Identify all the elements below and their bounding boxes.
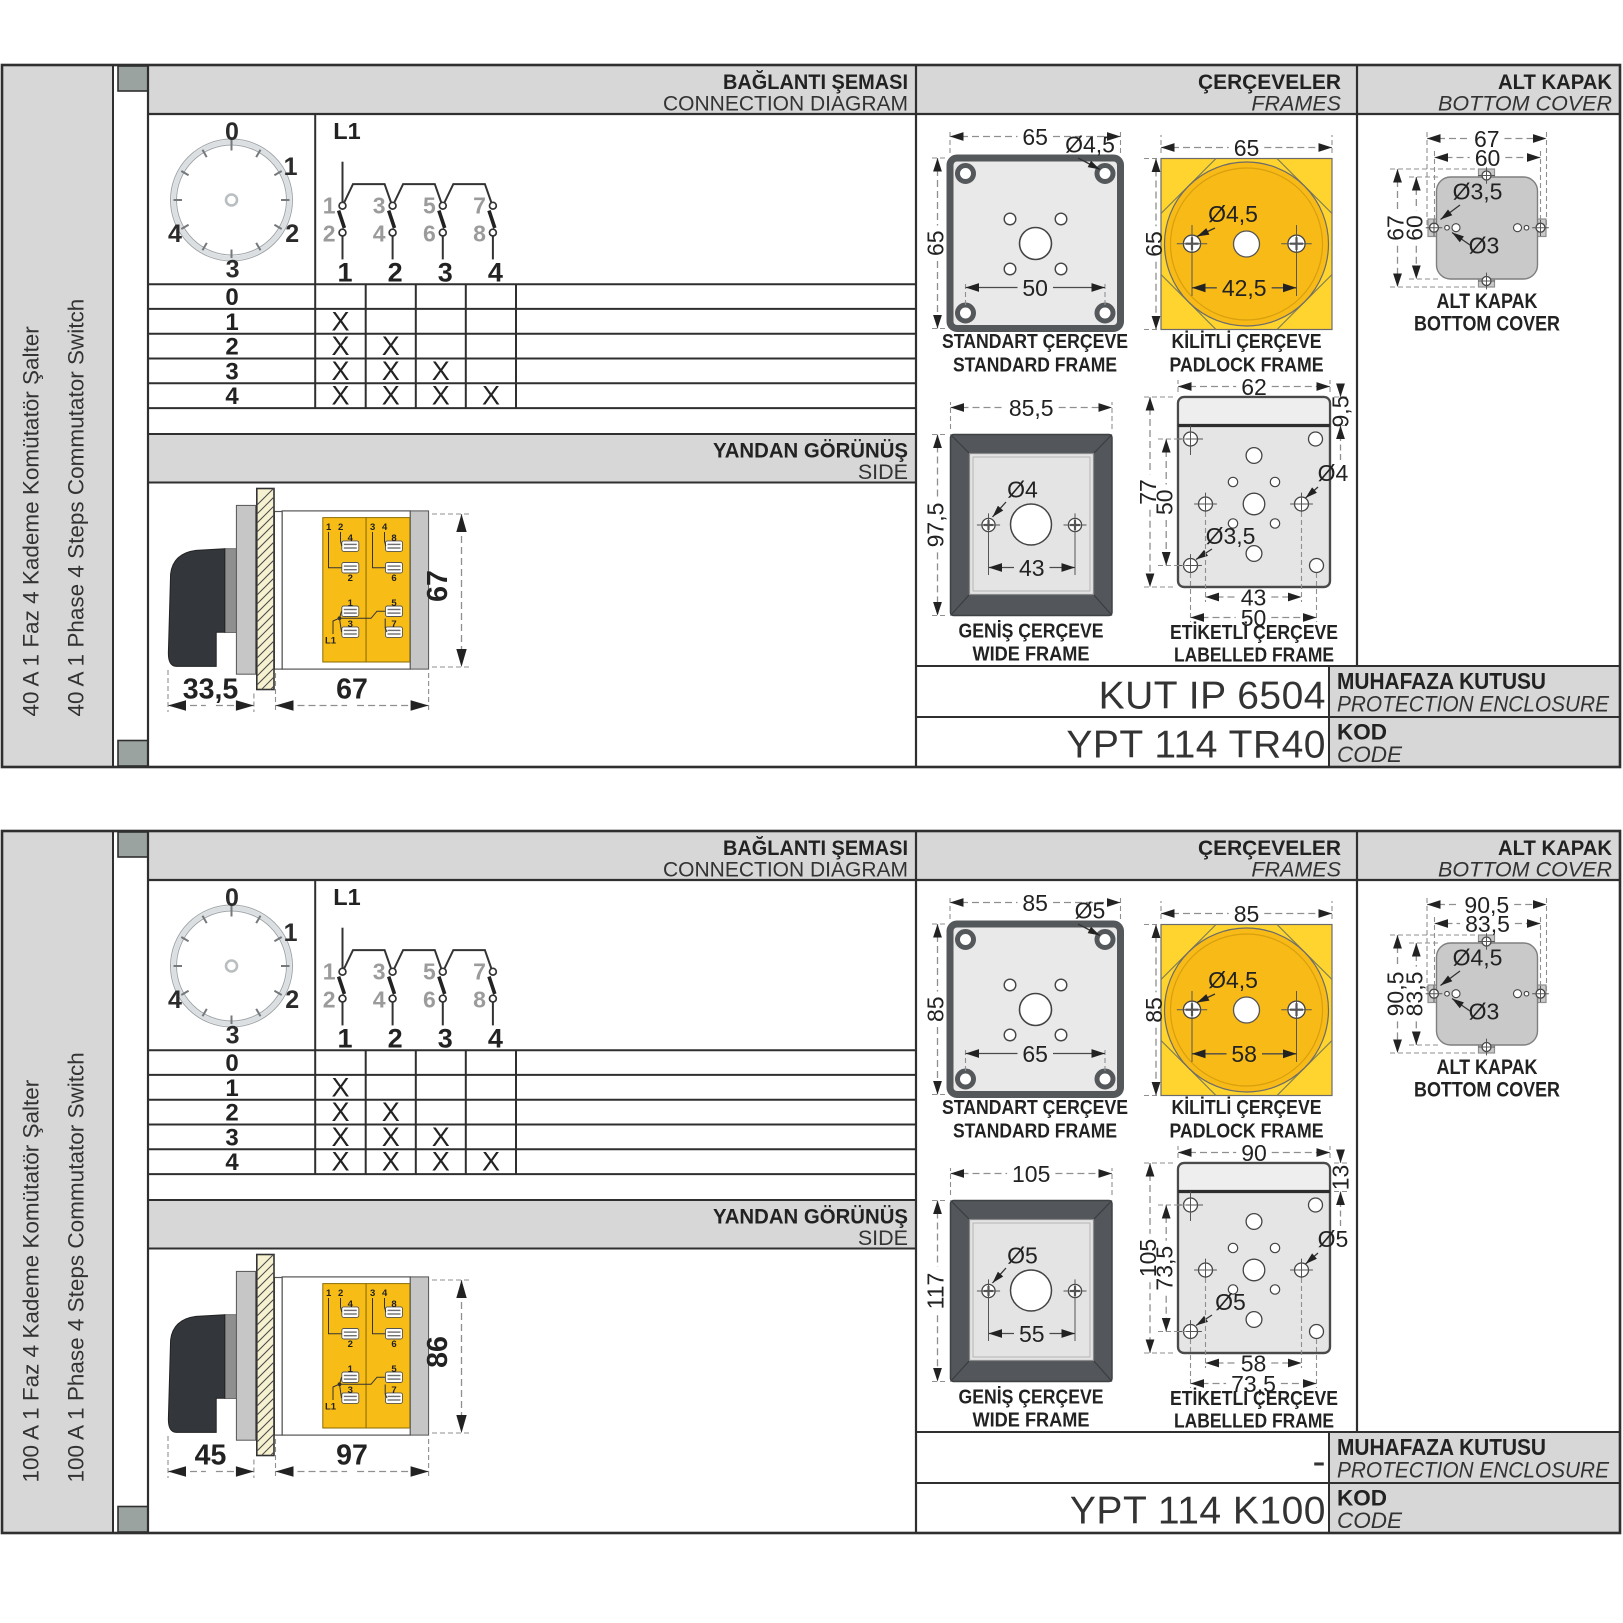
svg-text:L1: L1 [333, 118, 360, 144]
svg-text:4: 4 [348, 533, 354, 544]
svg-text:85: 85 [1141, 997, 1167, 1023]
svg-text:X: X [382, 381, 400, 411]
svg-text:L1: L1 [325, 636, 337, 647]
svg-text:Ø4,5: Ø4,5 [1208, 967, 1258, 993]
svg-text:6: 6 [391, 1339, 396, 1350]
svg-text:65: 65 [1022, 1041, 1048, 1067]
svg-text:2: 2 [388, 1024, 403, 1054]
svg-text:STANDART ÇERÇEVE: STANDART ÇERÇEVE [942, 330, 1128, 353]
svg-text:GENİŞ ÇERÇEVE: GENİŞ ÇERÇEVE [959, 1386, 1104, 1409]
svg-text:33,5: 33,5 [183, 674, 239, 706]
svg-text:L1: L1 [325, 1402, 337, 1413]
svg-text:GENİŞ ÇERÇEVE: GENİŞ ÇERÇEVE [959, 620, 1104, 643]
svg-text:1: 1 [326, 522, 332, 533]
svg-text:7: 7 [391, 619, 396, 630]
svg-text:4: 4 [225, 1149, 239, 1176]
svg-text:83,5: 83,5 [1401, 972, 1427, 1017]
svg-text:SIDE: SIDE [858, 460, 908, 484]
svg-text:5: 5 [423, 193, 436, 219]
svg-text:X: X [331, 381, 349, 411]
svg-text:Ø4: Ø4 [1007, 477, 1038, 503]
svg-text:7: 7 [473, 959, 486, 985]
svg-text:WIDE FRAME: WIDE FRAME [973, 643, 1090, 666]
svg-text:1: 1 [284, 919, 298, 947]
svg-text:FRAMES: FRAMES [1251, 858, 1341, 882]
svg-text:1: 1 [337, 1024, 352, 1054]
svg-text:2: 2 [285, 986, 299, 1014]
svg-text:STANDARD FRAME: STANDARD FRAME [953, 1120, 1117, 1143]
svg-text:YPT 114 TR40: YPT 114 TR40 [1066, 724, 1326, 767]
svg-text:85: 85 [1234, 901, 1260, 927]
svg-text:ALT KAPAK: ALT KAPAK [1437, 290, 1538, 313]
svg-text:X: X [432, 381, 450, 411]
svg-text:Ø4,5: Ø4,5 [1453, 945, 1503, 971]
svg-text:4: 4 [382, 522, 388, 533]
svg-text:2: 2 [338, 522, 343, 533]
svg-text:Ø5: Ø5 [1318, 1226, 1349, 1252]
svg-text:FRAMES: FRAMES [1251, 92, 1341, 116]
svg-text:50: 50 [1151, 489, 1177, 515]
svg-text:Ø3,5: Ø3,5 [1453, 179, 1503, 205]
svg-text:BOTTOM COVER: BOTTOM COVER [1438, 92, 1612, 116]
svg-text:Ø3: Ø3 [1469, 999, 1500, 1025]
svg-text:3: 3 [226, 256, 240, 284]
svg-text:60: 60 [1475, 145, 1501, 171]
svg-text:Ø4,5: Ø4,5 [1208, 201, 1258, 227]
svg-text:73,5: 73,5 [1151, 1246, 1177, 1291]
svg-text:2: 2 [338, 1288, 343, 1299]
svg-text:X: X [382, 1147, 400, 1177]
svg-text:13: 13 [1328, 1165, 1354, 1191]
svg-text:1: 1 [225, 309, 238, 336]
svg-text:3: 3 [438, 1024, 453, 1054]
svg-text:65: 65 [1141, 231, 1167, 257]
svg-text:Ø4: Ø4 [1318, 460, 1349, 486]
svg-text:60: 60 [1401, 215, 1427, 241]
svg-text:2: 2 [348, 573, 353, 584]
svg-text:BAĞLANTI ŞEMASI: BAĞLANTI ŞEMASI [723, 69, 908, 94]
svg-text:STANDARD FRAME: STANDARD FRAME [953, 354, 1117, 377]
svg-text:3: 3 [370, 1288, 375, 1299]
svg-text:85: 85 [1022, 890, 1048, 916]
svg-text:Ø5: Ø5 [1075, 898, 1106, 924]
svg-text:CODE: CODE [1337, 742, 1403, 767]
svg-text:65: 65 [1022, 124, 1048, 150]
svg-text:9,5: 9,5 [1328, 396, 1354, 428]
svg-text:45: 45 [195, 1440, 227, 1472]
svg-text:86: 86 [422, 1336, 454, 1368]
svg-text:3: 3 [370, 522, 375, 533]
svg-text:4: 4 [488, 1024, 503, 1054]
svg-text:ALT KAPAK: ALT KAPAK [1437, 1056, 1538, 1079]
svg-text:5: 5 [391, 1364, 397, 1375]
svg-text:43: 43 [1019, 555, 1045, 581]
svg-text:PROTECTION ENCLOSURE: PROTECTION ENCLOSURE [1337, 692, 1610, 717]
svg-text:117: 117 [923, 1273, 949, 1310]
svg-text:3: 3 [225, 358, 238, 385]
svg-text:KOD: KOD [1337, 1486, 1387, 1511]
svg-text:Ø5: Ø5 [1215, 1289, 1246, 1315]
svg-text:83,5: 83,5 [1465, 911, 1510, 937]
svg-text:CONNECTION DIAGRAM: CONNECTION DIAGRAM [663, 92, 908, 116]
svg-text:STANDART ÇERÇEVE: STANDART ÇERÇEVE [942, 1096, 1128, 1119]
svg-text:-: - [1313, 1441, 1327, 1484]
svg-text:2: 2 [348, 1339, 353, 1350]
svg-text:97,5: 97,5 [923, 503, 949, 548]
svg-text:8: 8 [391, 1299, 396, 1310]
svg-text:ALT KAPAK: ALT KAPAK [1498, 70, 1612, 94]
svg-text:62: 62 [1241, 374, 1267, 400]
svg-text:1: 1 [323, 193, 336, 219]
svg-text:KİLİTLİ ÇERÇEVE: KİLİTLİ ÇERÇEVE [1172, 1096, 1322, 1119]
svg-text:6: 6 [423, 221, 436, 247]
svg-text:Ø5: Ø5 [1007, 1243, 1038, 1269]
svg-text:PROTECTION ENCLOSURE: PROTECTION ENCLOSURE [1337, 1458, 1610, 1483]
svg-text:6: 6 [423, 987, 436, 1013]
svg-text:1: 1 [323, 959, 336, 985]
svg-text:3: 3 [373, 959, 386, 985]
svg-text:2: 2 [388, 258, 403, 288]
svg-text:YANDAN GÖRÜNÜŞ: YANDAN GÖRÜNÜŞ [713, 1204, 908, 1229]
svg-text:4: 4 [488, 258, 503, 288]
svg-text:4: 4 [225, 383, 239, 410]
svg-text:0: 0 [225, 284, 238, 311]
svg-text:Ø4,5: Ø4,5 [1065, 132, 1115, 158]
svg-text:2: 2 [323, 987, 336, 1013]
svg-text:5: 5 [423, 959, 436, 985]
svg-text:L1: L1 [333, 884, 360, 910]
svg-text:MUHAFAZA KUTUSU: MUHAFAZA KUTUSU [1337, 1434, 1546, 1460]
svg-text:1: 1 [225, 1075, 238, 1102]
svg-text:58: 58 [1231, 1041, 1257, 1067]
svg-text:105: 105 [1012, 1161, 1050, 1187]
svg-text:8: 8 [391, 533, 396, 544]
svg-text:MUHAFAZA KUTUSU: MUHAFAZA KUTUSU [1337, 668, 1546, 694]
svg-text:100 A 1 Phase 4 Steps Commutat: 100 A 1 Phase 4 Steps Commutator Switch [64, 1052, 89, 1482]
svg-text:BAĞLANTI ŞEMASI: BAĞLANTI ŞEMASI [723, 835, 908, 860]
svg-text:3: 3 [348, 1385, 353, 1396]
svg-text:CONNECTION DIAGRAM: CONNECTION DIAGRAM [663, 858, 908, 882]
svg-text:4: 4 [348, 1299, 354, 1310]
svg-text:2: 2 [323, 221, 336, 247]
svg-text:1: 1 [337, 258, 352, 288]
svg-text:67: 67 [336, 674, 368, 706]
svg-text:ÇERÇEVELER: ÇERÇEVELER [1198, 836, 1341, 860]
svg-text:100 A 1 Faz 4 Kademe Komütatör: 100 A 1 Faz 4 Kademe Komütatör Şalter [19, 1079, 44, 1482]
svg-text:0: 0 [225, 118, 239, 146]
svg-text:KİLİTLİ ÇERÇEVE: KİLİTLİ ÇERÇEVE [1172, 330, 1322, 353]
svg-text:BOTTOM COVER: BOTTOM COVER [1438, 858, 1612, 882]
svg-text:6: 6 [391, 573, 396, 584]
svg-text:50: 50 [1022, 275, 1048, 301]
svg-text:0: 0 [225, 884, 239, 912]
svg-text:ETİKETLİ ÇERÇEVE: ETİKETLİ ÇERÇEVE [1170, 621, 1338, 644]
svg-text:67: 67 [422, 570, 454, 602]
svg-text:85,5: 85,5 [1009, 395, 1054, 421]
svg-text:WIDE FRAME: WIDE FRAME [973, 1409, 1090, 1432]
svg-text:65: 65 [923, 230, 949, 256]
svg-text:0: 0 [225, 1050, 238, 1077]
svg-text:90: 90 [1241, 1140, 1267, 1166]
svg-text:40 A 1 Phase 4 Steps Commutato: 40 A 1 Phase 4 Steps Commutator Switch [64, 299, 89, 717]
svg-text:4: 4 [373, 221, 386, 247]
svg-text:BOTTOM COVER: BOTTOM COVER [1414, 1079, 1560, 1102]
svg-text:2: 2 [225, 1100, 238, 1127]
svg-text:5: 5 [391, 598, 397, 609]
svg-text:X: X [482, 1147, 500, 1177]
svg-text:X: X [482, 381, 500, 411]
svg-text:Ø3: Ø3 [1469, 233, 1500, 259]
svg-text:1: 1 [348, 1364, 354, 1375]
svg-text:4: 4 [168, 986, 182, 1014]
svg-text:CODE: CODE [1337, 1508, 1403, 1533]
svg-text:42,5: 42,5 [1222, 275, 1267, 301]
svg-text:3: 3 [373, 193, 386, 219]
svg-text:LABELLED FRAME: LABELLED FRAME [1174, 644, 1334, 667]
svg-text:Ø3,5: Ø3,5 [1206, 523, 1256, 549]
svg-text:3: 3 [438, 258, 453, 288]
svg-text:3: 3 [225, 1124, 238, 1151]
svg-text:3: 3 [348, 619, 353, 630]
svg-text:X: X [331, 1147, 349, 1177]
svg-text:7: 7 [473, 193, 486, 219]
svg-text:2: 2 [225, 334, 238, 361]
svg-text:4: 4 [382, 1288, 388, 1299]
svg-text:X: X [432, 1147, 450, 1177]
svg-text:97: 97 [336, 1440, 368, 1472]
svg-text:ETİKETLİ ÇERÇEVE: ETİKETLİ ÇERÇEVE [1170, 1387, 1338, 1410]
svg-text:3: 3 [226, 1022, 240, 1050]
svg-text:85: 85 [923, 996, 949, 1022]
svg-text:2: 2 [285, 220, 299, 248]
svg-text:YPT 114 K100: YPT 114 K100 [1070, 1490, 1326, 1533]
svg-text:7: 7 [391, 1385, 396, 1396]
svg-text:4: 4 [168, 220, 182, 248]
svg-text:8: 8 [473, 987, 486, 1013]
svg-text:1: 1 [284, 153, 298, 181]
svg-text:1: 1 [326, 1288, 332, 1299]
svg-text:8: 8 [473, 221, 486, 247]
svg-text:40 A 1 Faz 4 Kademe Komütatör: 40 A 1 Faz 4 Kademe Komütatör Şalter [19, 326, 44, 717]
svg-text:55: 55 [1019, 1321, 1045, 1347]
svg-text:65: 65 [1234, 135, 1260, 161]
svg-text:KUT IP 6504: KUT IP 6504 [1099, 675, 1326, 718]
svg-text:SIDE: SIDE [858, 1226, 908, 1250]
svg-text:ALT KAPAK: ALT KAPAK [1498, 836, 1612, 860]
svg-text:YANDAN GÖRÜNÜŞ: YANDAN GÖRÜNÜŞ [713, 438, 908, 463]
svg-text:1: 1 [348, 598, 354, 609]
svg-text:LABELLED FRAME: LABELLED FRAME [1174, 1410, 1334, 1433]
svg-text:BOTTOM COVER: BOTTOM COVER [1414, 313, 1560, 336]
svg-text:4: 4 [373, 987, 386, 1013]
svg-text:ÇERÇEVELER: ÇERÇEVELER [1198, 70, 1341, 94]
svg-text:KOD: KOD [1337, 720, 1387, 745]
